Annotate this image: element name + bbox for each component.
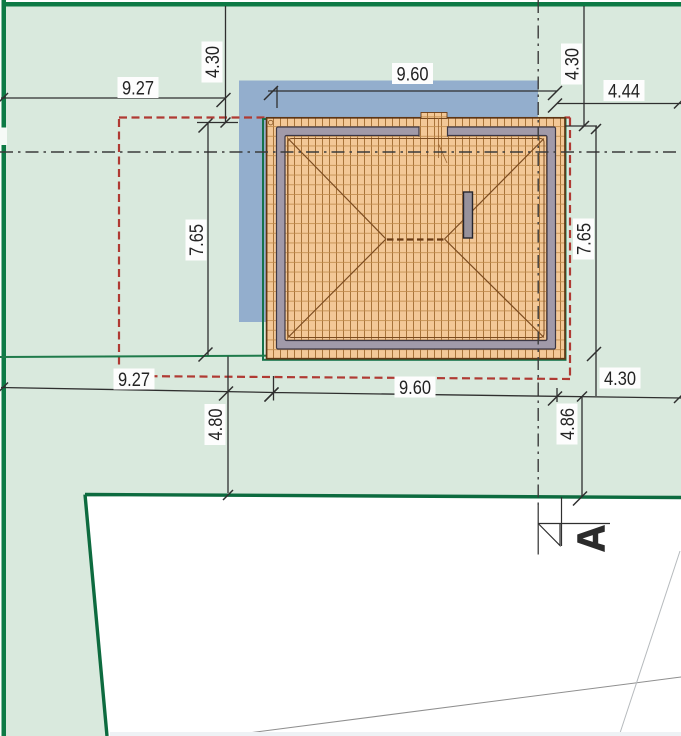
svg-text:9.27: 9.27 (122, 79, 154, 100)
svg-text:4.44: 4.44 (608, 82, 640, 103)
svg-text:9.27: 9.27 (118, 370, 150, 391)
svg-text:7.65: 7.65 (187, 224, 208, 256)
svg-text:4.30: 4.30 (563, 48, 584, 80)
svg-text:4.80: 4.80 (206, 409, 227, 441)
svg-text:9.60: 9.60 (399, 378, 431, 399)
svg-text:4.86: 4.86 (558, 408, 579, 440)
svg-text:4.30: 4.30 (203, 46, 224, 78)
svg-text:9.60: 9.60 (397, 65, 429, 86)
svg-text:7.65: 7.65 (575, 223, 596, 255)
svg-text:4.30: 4.30 (604, 369, 636, 390)
